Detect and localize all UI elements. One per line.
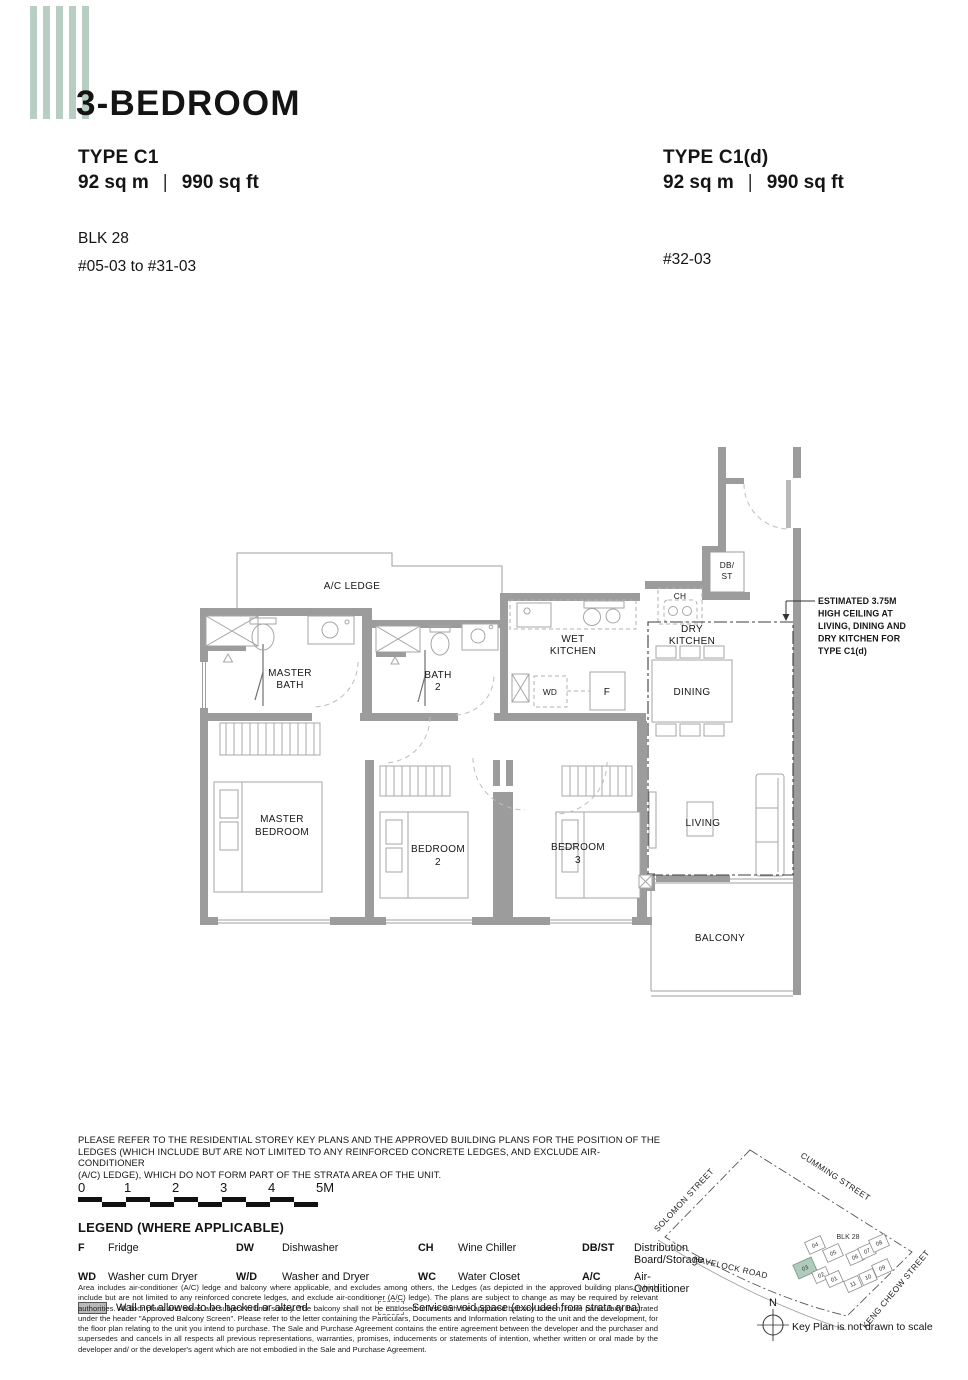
- area-imperial-right: 990 sq ft: [767, 172, 844, 194]
- sofa: [756, 774, 784, 876]
- label-master-bedroom: MASTER: [260, 814, 304, 825]
- key-plan: SOLOMON STREET CUMMING STREET HAVELOCK R…: [650, 1140, 960, 1345]
- floorplan-drawing: A/C LEDGE MASTER BATH BATH 2 WET KITCHEN…: [190, 430, 950, 1030]
- unit-cluster: 04 05 03 02 01 06 07 08 09 10 11: [793, 1234, 893, 1293]
- stack-range-left: #05-03 to #31-03: [78, 253, 196, 281]
- area-divider-right: |: [748, 172, 753, 194]
- label-ac-ledge: A/C LEDGE: [324, 581, 381, 592]
- label-bath2: BATH: [424, 670, 451, 681]
- master-wardrobe: [220, 723, 320, 755]
- street-solomon: SOLOMON STREET: [652, 1166, 716, 1234]
- label-db-st: DB/: [720, 560, 735, 570]
- area-divider-left: |: [163, 172, 168, 194]
- tv-console: [649, 792, 656, 848]
- blk-label: BLK 28: [837, 1234, 860, 1241]
- area-right: 92 sq m | 990 sq ft: [663, 172, 844, 194]
- svg-text:LIVING, DINING AND: LIVING, DINING AND: [818, 621, 906, 631]
- label-dry-kitchen: DRY: [681, 624, 703, 635]
- svg-text:DRY KITCHEN FOR: DRY KITCHEN FOR: [818, 634, 901, 644]
- entry-door-leaf: [786, 480, 791, 528]
- label-bedroom3: BEDROOM: [551, 842, 605, 853]
- street-cumming: CUMMING STREET: [799, 1150, 873, 1203]
- area-left: 92 sq m | 990 sq ft: [78, 172, 259, 194]
- svg-text:ESTIMATED 3.75M: ESTIMATED 3.75M: [818, 596, 897, 606]
- label-ch: CH: [674, 591, 686, 601]
- area-metric-right: 92 sq m: [663, 172, 734, 194]
- svg-text:HIGH CEILING AT: HIGH CEILING AT: [818, 609, 893, 619]
- ledge-caption: PLEASE REFER TO THE RESIDENTIAL STOREY K…: [78, 1134, 663, 1181]
- street-keng-cheow: KENG CHEOW STREET: [860, 1248, 932, 1331]
- svg-text:ST: ST: [721, 571, 732, 581]
- type-name-right: TYPE C1(d): [663, 147, 844, 169]
- stack-range-right: #32-03: [663, 251, 711, 269]
- label-dining: DINING: [673, 687, 710, 698]
- bath2-fixtures: [376, 624, 498, 706]
- svg-text:KITCHEN: KITCHEN: [669, 636, 715, 647]
- label-wd: WD: [543, 687, 557, 697]
- svg-text:BEDROOM: BEDROOM: [255, 827, 309, 838]
- svg-text:TYPE C1(d): TYPE C1(d): [818, 646, 867, 656]
- bedroom2-bed: [380, 812, 468, 898]
- label-living: LIVING: [686, 818, 721, 829]
- svg-text:2: 2: [435, 682, 441, 693]
- scale-bar: 0 1 2 3 4 5M: [78, 1180, 378, 1210]
- north-compass-icon: N: [757, 1297, 789, 1341]
- page-title: 3-BEDROOM: [76, 84, 301, 124]
- bedroom3-wardrobe: [562, 766, 632, 796]
- label-bedroom2: BEDROOM: [411, 844, 465, 855]
- label-master-bath: MASTER: [268, 668, 312, 679]
- ceiling-annotation: ESTIMATED 3.75M HIGH CEILING AT LIVING, …: [818, 596, 906, 656]
- type-block-right: TYPE C1(d) 92 sq m | 990 sq ft: [663, 147, 844, 194]
- svg-text:2: 2: [435, 857, 441, 868]
- label-balcony: BALCONY: [695, 933, 745, 944]
- svg-text:N: N: [769, 1297, 777, 1309]
- svg-text:3: 3: [575, 855, 581, 866]
- type-block-left: TYPE C1 92 sq m | 990 sq ft: [78, 147, 259, 194]
- master-bath-fixtures: [206, 616, 354, 706]
- label-wet-kitchen: WET: [561, 634, 584, 645]
- type-name-left: TYPE C1: [78, 147, 259, 169]
- block-info: BLK 28 #05-03 to #31-03: [78, 225, 196, 281]
- bedroom2-wardrobe: [380, 766, 450, 796]
- svg-text:BATH: BATH: [276, 680, 303, 691]
- keyplan-note: Key Plan is not drawn to scale: [792, 1321, 933, 1333]
- svg-text:KITCHEN: KITCHEN: [550, 646, 596, 657]
- label-f: F: [604, 687, 610, 698]
- bedroom3-bed: [556, 812, 640, 898]
- block-number: BLK 28: [78, 225, 196, 253]
- havelock-road-line: [658, 1240, 846, 1330]
- disclaimer-text: Area includes air-conditioner (A/C) ledg…: [78, 1283, 658, 1355]
- area-metric-left: 92 sq m: [78, 172, 149, 194]
- floorplan-page: 3-BEDROOM TYPE C1 92 sq m | 990 sq ft TY…: [0, 0, 968, 1380]
- legend-title: LEGEND (WHERE APPLICABLE): [78, 1220, 670, 1235]
- area-imperial-left: 990 sq ft: [182, 172, 259, 194]
